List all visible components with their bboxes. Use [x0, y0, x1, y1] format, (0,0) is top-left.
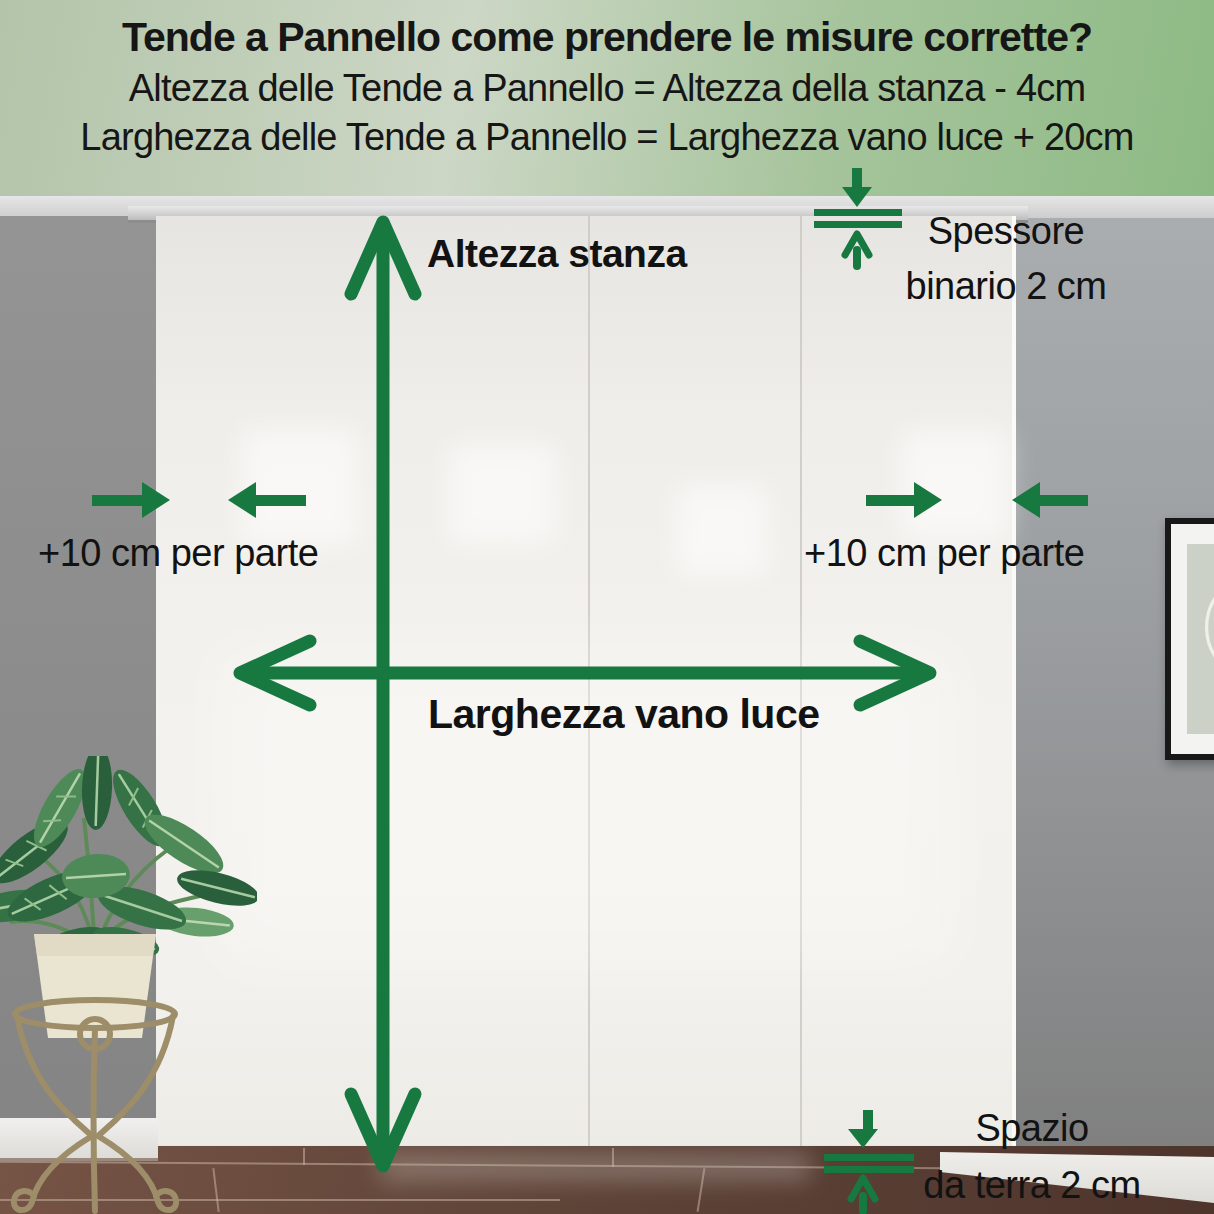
rail-thickness-line2: binario 2 cm [872, 259, 1140, 314]
page-title: Tende a Pannello come prendere le misure… [0, 0, 1214, 64]
formula-height: Altezza delle Tende a Pannello = Altezza… [0, 64, 1214, 113]
rail-thickness-line1: Spessore [872, 204, 1140, 259]
header-banner: Tende a Pannello come prendere le misure… [0, 0, 1214, 196]
opening-width-label: Larghezza vano luce [428, 691, 820, 738]
curtain-reflection [676, 484, 768, 576]
side-allowance-label-left: +10 cm per parte [38, 532, 318, 575]
floor-gap-label: Spazio da terra 2 cm [898, 1100, 1166, 1214]
plant-pot [34, 934, 156, 1038]
panel-edge-highlight [1012, 216, 1016, 1158]
picture-art [1187, 544, 1214, 734]
room-height-label: Altezza stanza [427, 232, 687, 276]
side-allowance-label-right: +10 cm per parte [804, 532, 1084, 575]
formula-width: Larghezza delle Tende a Pannello = Largh… [0, 113, 1214, 162]
picture-circle-motif [1187, 544, 1214, 734]
potted-plant [0, 756, 257, 1214]
rail-thickness-label: Spessore binario 2 cm [872, 204, 1140, 314]
curtain-reflection [241, 428, 359, 546]
floor-gap-line2: da terra 2 cm [898, 1157, 1166, 1214]
curtain-reflection [448, 444, 556, 544]
grout-line [612, 1148, 614, 1167]
plant-stand [14, 1000, 176, 1211]
plant-foliage [0, 756, 257, 963]
grout-line [303, 1148, 305, 1165]
curtain-measurement-infographic: Tende a Pannello come prendere le misure… [0, 0, 1214, 1214]
curtain-panels [156, 216, 1016, 1158]
picture-frame [1165, 518, 1214, 760]
floor-gap-line1: Spazio [898, 1100, 1166, 1157]
curtain-reflection [901, 430, 1007, 540]
